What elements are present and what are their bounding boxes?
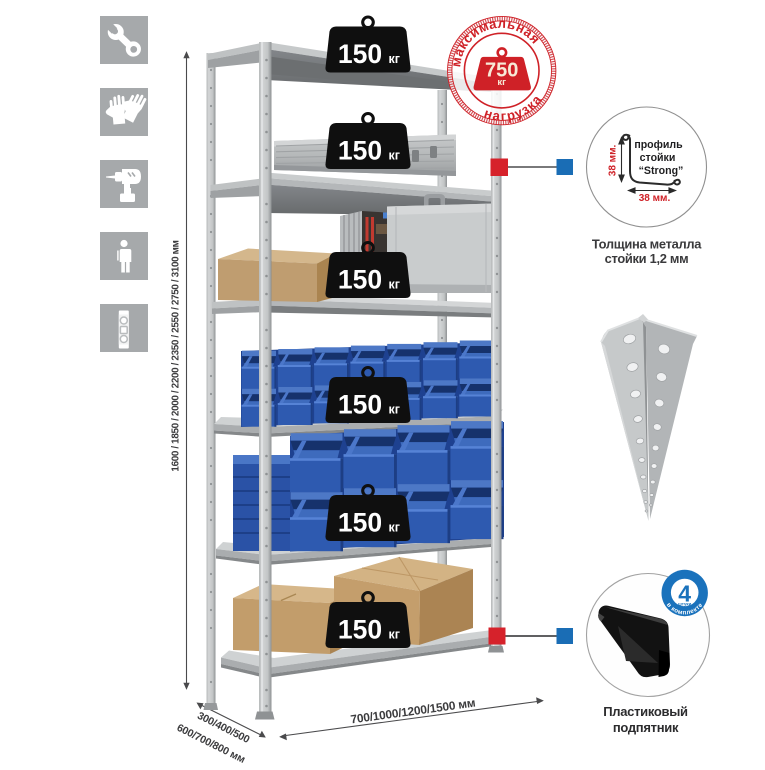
svg-text:150: 150 (338, 615, 382, 645)
svg-text:кг: кг (389, 52, 400, 66)
svg-text:150: 150 (338, 390, 382, 420)
svg-text:стойки 1,2 мм: стойки 1,2 мм (605, 251, 689, 266)
svg-text:Толщина металла: Толщина металла (592, 237, 702, 252)
svg-text:150: 150 (338, 39, 382, 69)
svg-text:38 мм.: 38 мм. (639, 193, 671, 204)
svg-text:Пластиковый: Пластиковый (603, 704, 688, 719)
svg-text:150: 150 (338, 508, 382, 538)
svg-text:профиль: профиль (634, 139, 683, 151)
svg-text:150: 150 (338, 265, 382, 295)
svg-text:подпятник: подпятник (613, 720, 679, 735)
svg-text:стойки: стойки (640, 152, 676, 164)
svg-text:1600 / 1850 / 2000 / 2200 / 23: 1600 / 1850 / 2000 / 2200 / 2350 / 2550 … (171, 240, 182, 471)
svg-text:кг: кг (389, 521, 400, 535)
svg-text:“Strong”: “Strong” (639, 165, 684, 177)
svg-text:кг: кг (389, 278, 400, 292)
svg-text:штуки: штуки (678, 602, 692, 607)
svg-text:кг: кг (389, 403, 400, 417)
svg-text:150: 150 (338, 136, 382, 166)
svg-text:кг: кг (497, 77, 506, 88)
svg-text:кг: кг (389, 628, 400, 642)
svg-text:38 мм.: 38 мм. (608, 145, 619, 177)
svg-text:кг: кг (389, 149, 400, 163)
